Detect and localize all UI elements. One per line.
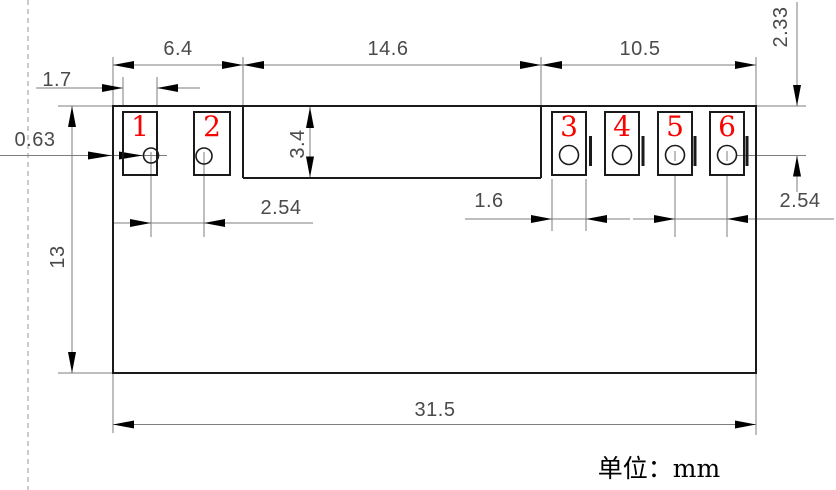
body-outline [113,106,756,373]
dim-body-height: 13 [47,245,69,268]
lead-mark [694,136,697,166]
drawing-canvas: 1 2 3 4 5 6 6.4 14.6 10.5 1.7 0.63 2.33 … [0,0,836,490]
holes [144,146,737,165]
dim-pad3-width: 1.6 [474,190,503,212]
dim-overall-width: 31.5 [415,399,456,421]
pad-4-number: 4 [613,110,631,143]
dim-pad1-width: 1.7 [42,69,71,91]
pad-1-number: 1 [131,110,149,143]
dimension-lines [36,2,834,425]
dimension-labels: 6.4 14.6 10.5 1.7 0.63 2.33 3.4 2.54 1.6… [15,7,821,421]
pad-2-number: 2 [203,110,221,143]
dimension-drawing: 1 2 3 4 5 6 6.4 14.6 10.5 1.7 0.63 2.33 … [0,0,836,490]
dim-pads36-group-width: 10.5 [620,38,661,60]
dim-left-hole-pitch: 2.54 [261,197,302,219]
dim-top-to-hole-offset: 2.33 [770,7,792,48]
lead-mark [746,136,749,166]
dim-right-hole-pitch: 2.54 [780,190,821,212]
pad-numbers: 1 2 3 4 5 6 [131,110,736,143]
dim-tab-height: 3.4 [287,129,309,158]
hole-4 [613,146,632,165]
hole-3 [560,146,579,165]
dim-center-span: 14.6 [368,38,409,60]
extension-lines [0,57,806,435]
dim-edge-to-hole: 0.63 [15,129,56,151]
pad-3-number: 3 [560,110,578,143]
dim-pads12-group-width: 6.4 [163,38,192,60]
pad-5-number: 5 [666,110,684,143]
lead-mark [589,136,592,166]
unit-note: 单位：mm [598,454,721,483]
lead-mark [642,136,645,166]
pad-6-number: 6 [718,110,736,143]
